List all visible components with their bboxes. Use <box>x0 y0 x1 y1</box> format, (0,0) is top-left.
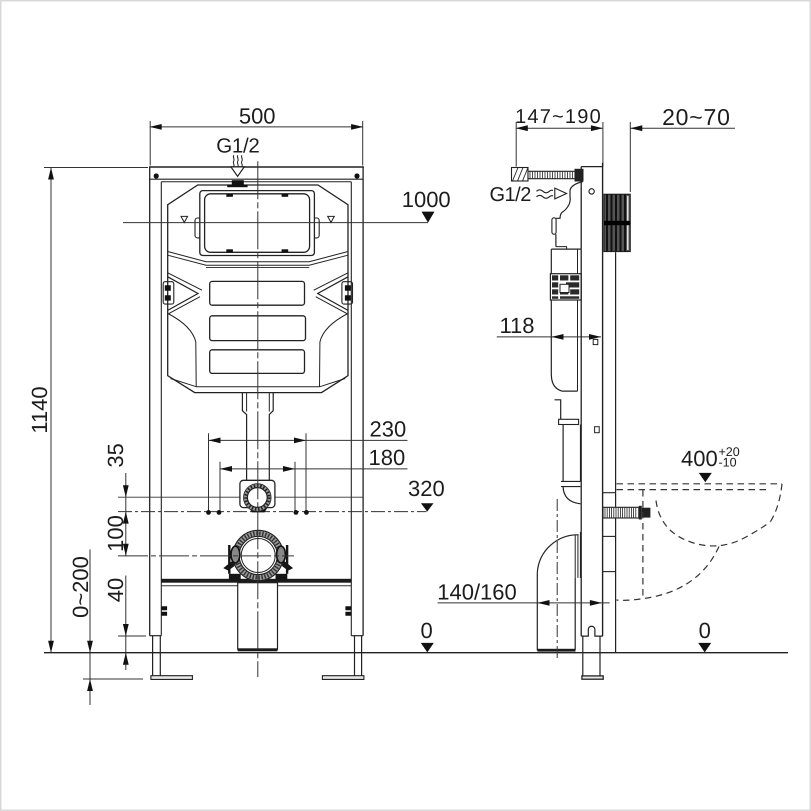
svg-text:100: 100 <box>103 515 128 552</box>
svg-text:35: 35 <box>103 443 128 467</box>
svg-text:G1/2: G1/2 <box>216 135 259 158</box>
svg-text:118: 118 <box>499 313 534 338</box>
svg-text:-10: -10 <box>719 456 737 470</box>
svg-text:20~70: 20~70 <box>662 104 731 130</box>
svg-text:1000: 1000 <box>402 187 451 212</box>
svg-text:400: 400 <box>681 446 718 471</box>
svg-text:230: 230 <box>370 416 407 441</box>
svg-text:40: 40 <box>103 578 128 602</box>
svg-text:147~190: 147~190 <box>515 106 602 128</box>
svg-text:0: 0 <box>420 618 432 643</box>
svg-text:1140: 1140 <box>27 386 52 433</box>
svg-text:140/160: 140/160 <box>437 579 517 604</box>
svg-text:G1/2: G1/2 <box>490 184 532 206</box>
svg-text:180: 180 <box>369 445 406 470</box>
svg-text:500: 500 <box>239 104 276 129</box>
svg-text:0~200: 0~200 <box>68 556 93 618</box>
svg-text:320: 320 <box>408 476 445 501</box>
svg-text:0: 0 <box>699 618 711 643</box>
